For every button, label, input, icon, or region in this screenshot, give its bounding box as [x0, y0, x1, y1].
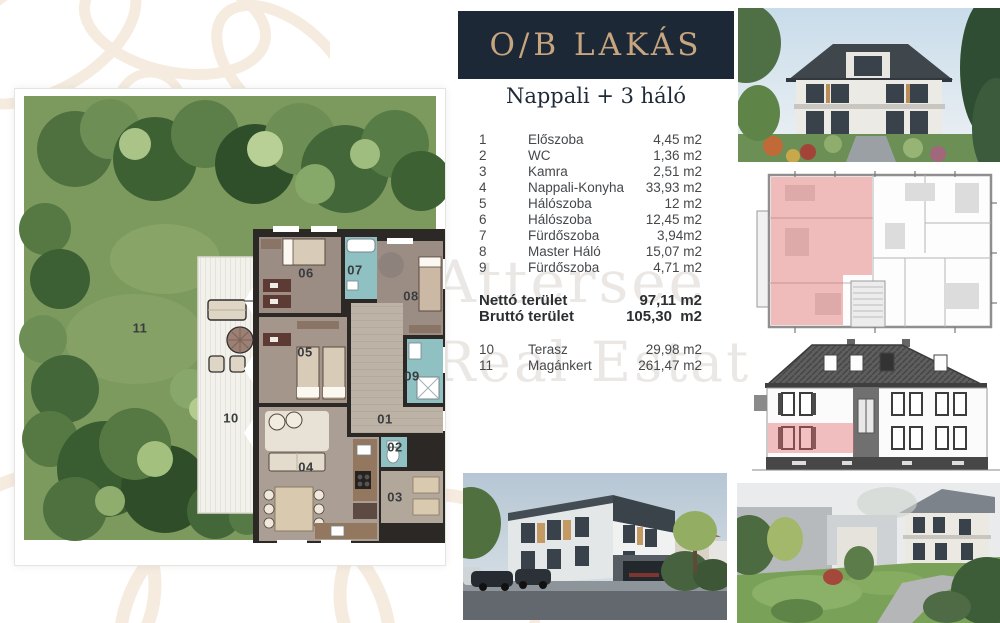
street-view-render — [463, 473, 727, 620]
plan-label-11: 11 — [133, 321, 148, 336]
building-front-render — [738, 8, 1000, 162]
table-row: 2 WC 1,36 m2 — [479, 148, 702, 164]
room-number: 7 — [479, 228, 528, 243]
room-name: Kamra — [528, 164, 653, 179]
room-area: 33,93 m2 — [646, 180, 702, 195]
apartment-floor-plan: 06 07 08 05 09 01 02 03 04 10 11 — [14, 88, 446, 566]
plan-label-08: 08 — [403, 289, 418, 304]
room-name: Hálószoba — [528, 196, 664, 211]
room-area: 29,98 m2 — [646, 342, 702, 357]
apartment-subtitle: Nappali + 3 háló — [458, 84, 734, 108]
room-name: Nappali-Konyha — [528, 180, 646, 195]
table-row: 4 Nappali-Konyha 33,93 m2 — [479, 180, 702, 196]
table-row: 1 Előszoba 4,45 m2 — [479, 132, 702, 148]
room-number: 8 — [479, 244, 528, 259]
room-name: Fürdőszoba — [528, 260, 653, 275]
room-name: Magánkert — [528, 358, 638, 373]
net-area-row: Nettó terület 97,11 m2 — [479, 292, 702, 309]
table-row: 6 Hálószoba 12,45 m2 — [479, 211, 702, 227]
table-row: 5 Hálószoba 12 m2 — [479, 196, 702, 212]
outdoor-areas: 10 Terasz 29,98 m2 11 Magánkert 261,47 m… — [479, 341, 702, 373]
plan-label-04: 04 — [298, 460, 313, 475]
room-number: 10 — [479, 342, 528, 357]
apartment-title-banner: O/B LAKÁS — [458, 11, 734, 79]
gross-area-row: Bruttó terület 105,30 m2 — [479, 309, 702, 326]
plan-label-06: 06 — [298, 266, 313, 281]
apartment-interior — [244, 226, 445, 546]
garden-view-render — [737, 483, 1000, 623]
room-area: 4,71 m2 — [653, 260, 702, 275]
plan-label-09: 09 — [404, 369, 419, 384]
room-area: 12 m2 — [664, 196, 702, 211]
plan-label-02: 02 — [387, 440, 402, 455]
room-number: 2 — [479, 148, 528, 163]
floor-plan-drawing — [15, 89, 445, 565]
room-area: 2,51 m2 — [653, 164, 702, 179]
plan-label-05: 05 — [297, 345, 312, 360]
room-number: 11 — [479, 358, 528, 373]
table-row: 3 Kamra 2,51 m2 — [479, 164, 702, 180]
storey-plan-schematic — [755, 163, 1000, 339]
room-number: 4 — [479, 180, 528, 195]
table-row: 8 Master Háló 15,07 m2 — [479, 243, 702, 259]
front-garden — [738, 134, 1000, 162]
room-number: 6 — [479, 212, 528, 227]
plan-label-01: 01 — [377, 412, 392, 427]
net-area-label: Nettó terület — [479, 292, 611, 309]
room-area: 12,45 m2 — [646, 212, 702, 227]
room-name: Előszoba — [528, 132, 653, 147]
room-number: 5 — [479, 196, 528, 211]
table-row: 11 Magánkert 261,47 m2 — [479, 357, 702, 373]
area-totals: Nettó terület 97,11 m2 Bruttó terület 10… — [479, 292, 702, 325]
room-name: Hálószoba — [528, 212, 646, 227]
plan-label-07: 07 — [347, 263, 362, 278]
table-row: 9 Fürdőszoba 4,71 m2 — [479, 259, 702, 275]
room-number: 3 — [479, 164, 528, 179]
net-area-value: 97,11 m2 — [611, 292, 702, 309]
table-row: 10 Terasz 29,98 m2 — [479, 341, 702, 357]
room-area: 15,07 m2 — [646, 244, 702, 259]
table-row: 7 Fürdőszoba 3,94m2 — [479, 227, 702, 243]
room-area: 1,36 m2 — [653, 148, 702, 163]
room-name: Fürdőszoba — [528, 228, 657, 243]
unit-highlight-elevation — [768, 423, 854, 453]
gross-area-label: Bruttó terület — [479, 308, 611, 325]
apartment-title: O/B LAKÁS — [490, 27, 703, 63]
plan-label-10: 10 — [223, 411, 238, 426]
elevation-drawing — [752, 339, 1000, 481]
room-name: Master Háló — [528, 244, 646, 259]
room-name: WC — [528, 148, 653, 163]
room-name: Terasz — [528, 342, 646, 357]
gross-area-value: 105,30 m2 — [611, 308, 702, 325]
listing-sheet: { "header": { "title": "O/B LAKÁS", "sub… — [0, 0, 1000, 623]
room-number: 9 — [479, 260, 528, 275]
room-area: 261,47 m2 — [638, 358, 702, 373]
room-number: 1 — [479, 132, 528, 147]
room-area: 4,45 m2 — [653, 132, 702, 147]
room-area-table: 1 Előszoba 4,45 m2 2 WC 1,36 m2 3 Kamra … — [479, 132, 702, 373]
plan-label-03: 03 — [387, 490, 402, 505]
room-area: 3,94m2 — [657, 228, 702, 243]
